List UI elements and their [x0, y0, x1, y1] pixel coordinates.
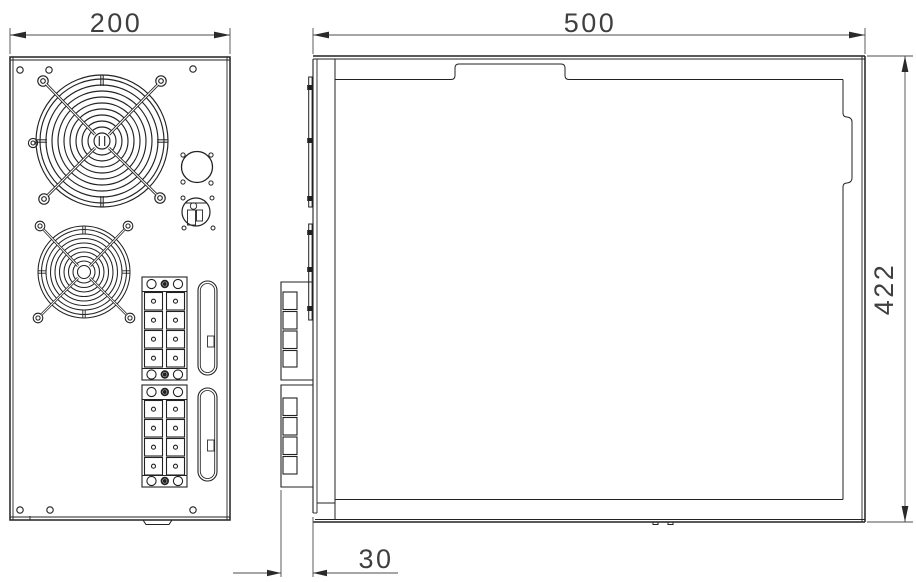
- technical-drawing-canvas: 200 500 422 30: [0, 0, 916, 582]
- fan-guard-wires-small: [42, 230, 127, 315]
- fan-guard-profile-lower: [307, 224, 313, 320]
- slot-lower: [198, 388, 217, 481]
- large-fan-grille: [36, 75, 168, 207]
- right-latch-recess: [843, 80, 852, 500]
- dim-label-side-depth: 500: [564, 8, 617, 38]
- dim-label-rear-protrusion: 30: [358, 544, 393, 574]
- terminal-cells-upper: [145, 293, 185, 368]
- top-recess-tab: [335, 64, 843, 80]
- terminal-block-lower: [142, 385, 187, 487]
- terminal-block-profile-upper: [281, 282, 313, 380]
- fan-guard-profile-upper: [307, 77, 313, 207]
- rear-view: [10, 57, 230, 525]
- fuse-holder: [181, 196, 215, 230]
- terminal-block-profile-lower: [281, 385, 313, 487]
- slot-upper: [198, 281, 217, 375]
- dimension-arrows: [267, 570, 327, 576]
- terminal-cells-lower: [145, 401, 185, 476]
- dim-label-rear-width: 200: [90, 8, 143, 38]
- side-view: [281, 56, 865, 525]
- power-inlet-hole: [181, 152, 213, 186]
- dim-label-side-height: 422: [869, 263, 899, 316]
- side-outline: [313, 56, 865, 525]
- small-fan-grille: [33, 221, 135, 323]
- dimension-labels: 200 500 422 30: [90, 8, 899, 574]
- rear-panel-outline: [10, 57, 230, 520]
- terminal-block-upper: [142, 277, 187, 380]
